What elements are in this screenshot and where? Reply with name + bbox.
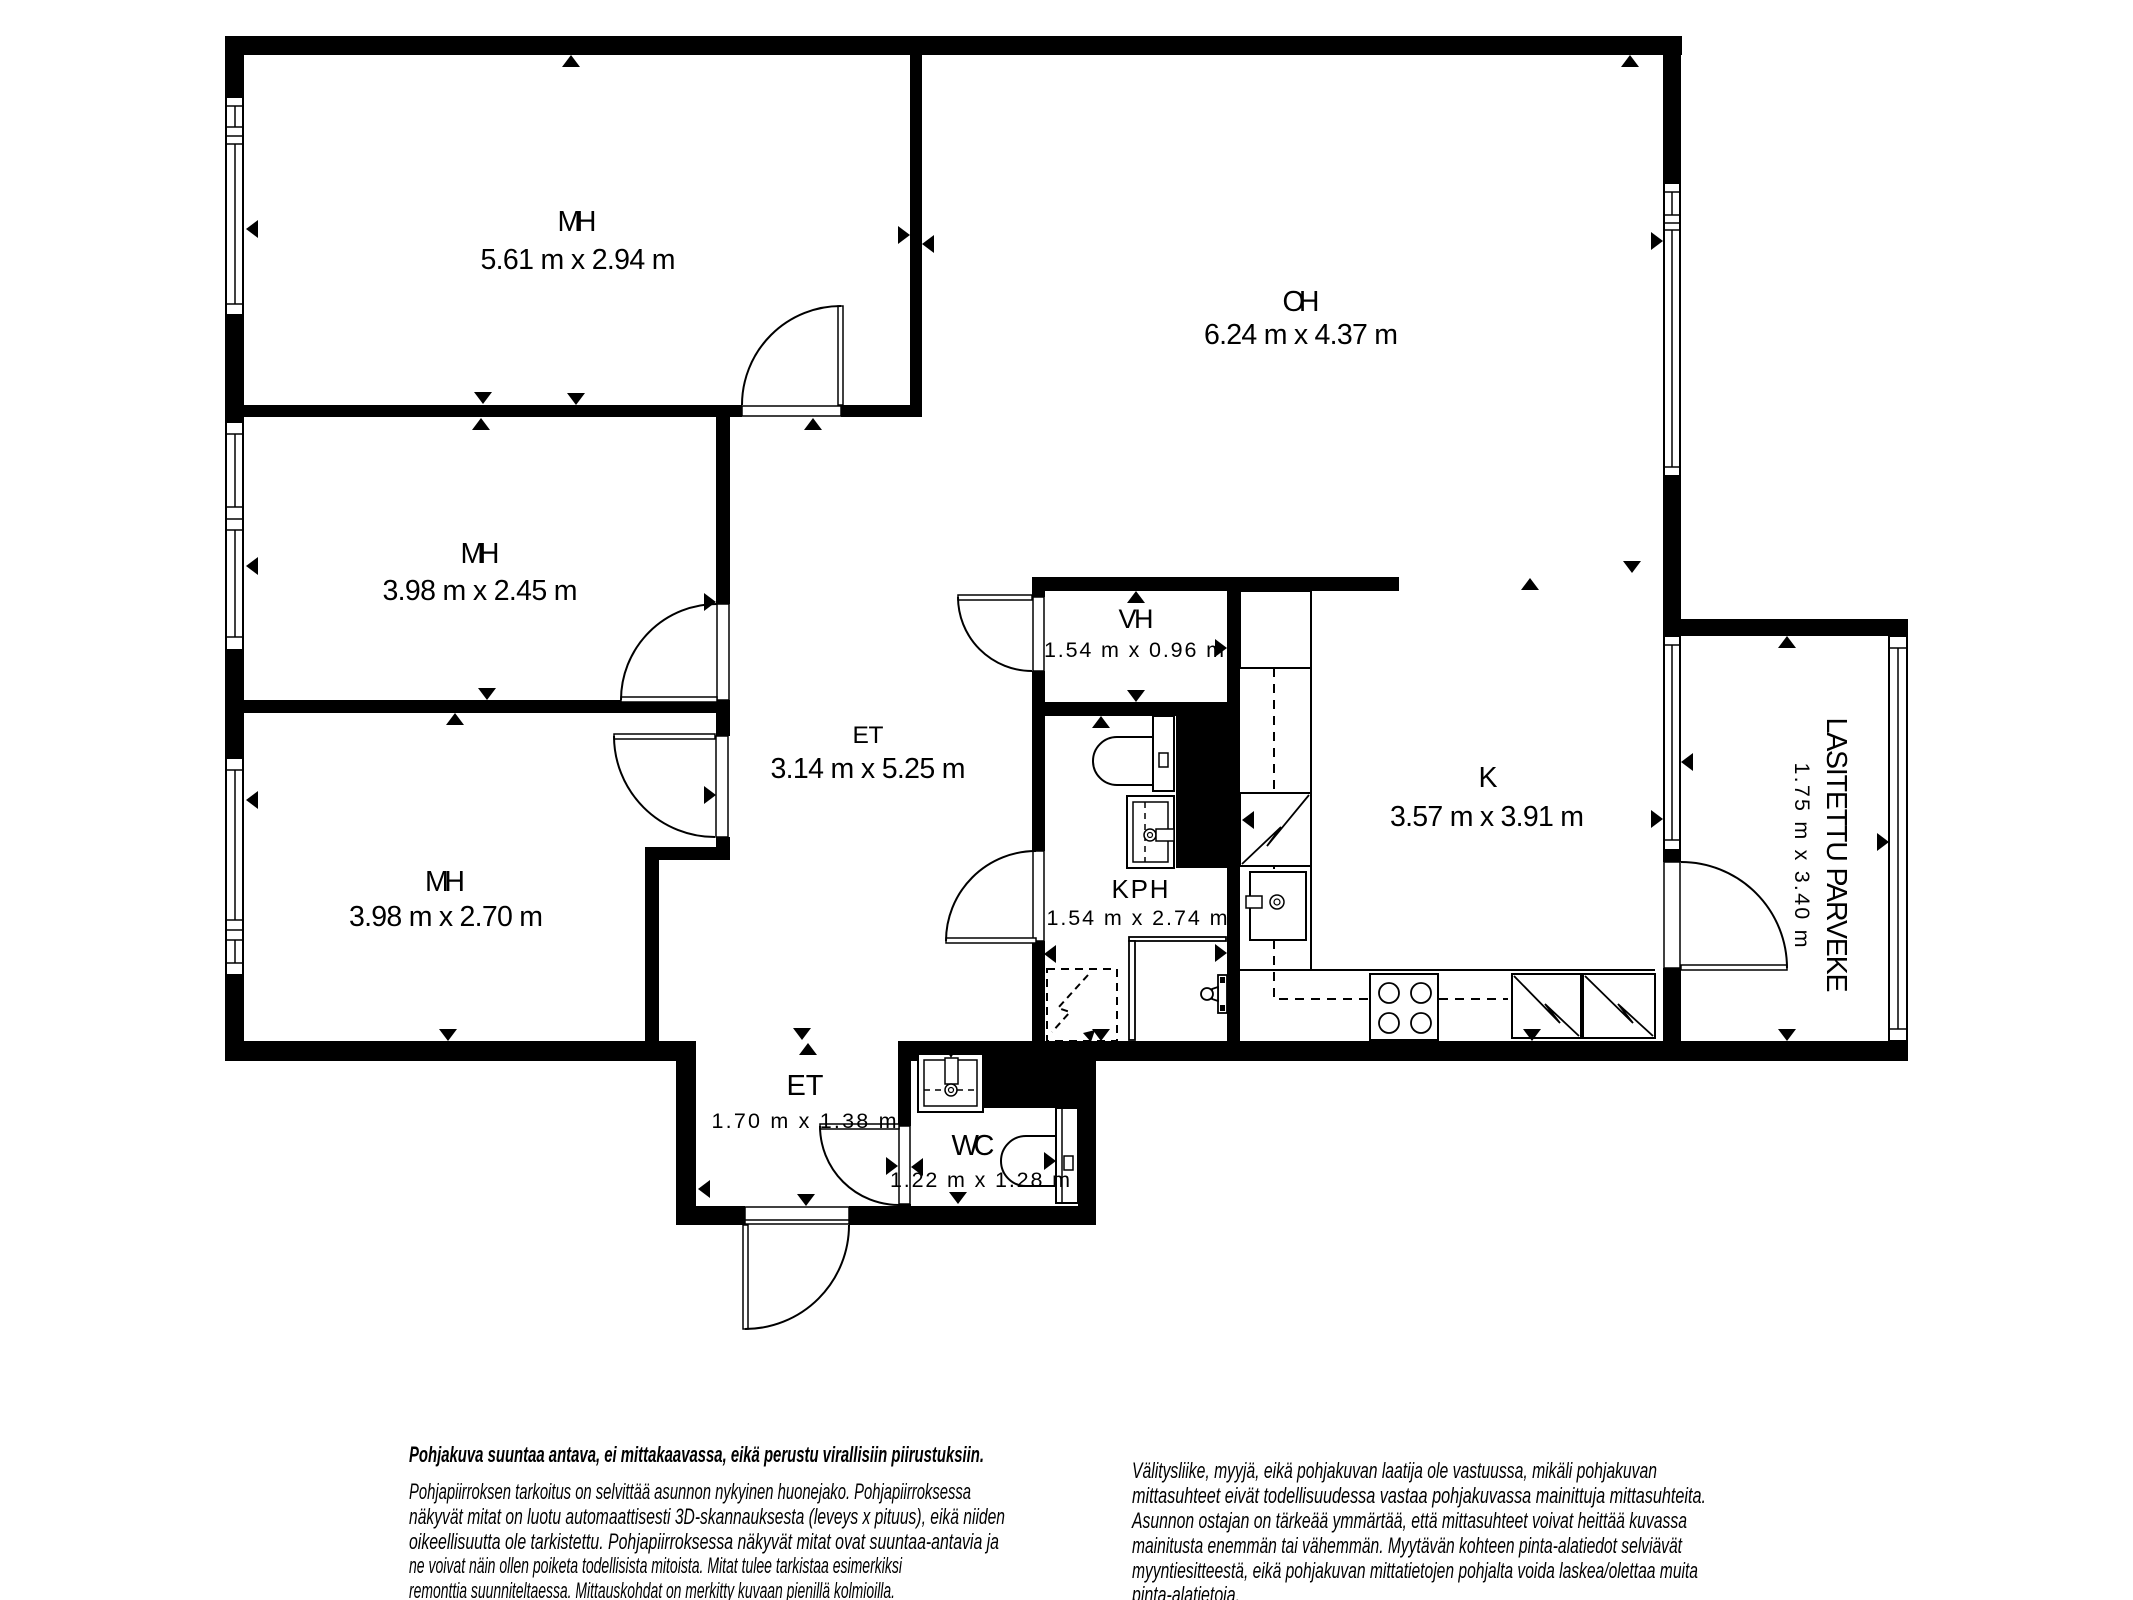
svg-text:Pohjapiirroksen tarkoitus on s: Pohjapiirroksen tarkoitus on selvittää a… — [409, 1479, 971, 1504]
svg-text:ET: ET — [787, 1070, 824, 1102]
svg-text:VH: VH — [1119, 604, 1154, 634]
svg-text:mittasuhteet eivät todellisuud: mittasuhteet eivät todellisuudessa vasta… — [1132, 1483, 1706, 1508]
svg-text:MH: MH — [558, 206, 597, 238]
svg-text:MH: MH — [425, 866, 465, 898]
svg-text:Pohjakuva suuntaa antava, ei m: Pohjakuva suuntaa antava, ei mittakaavas… — [409, 1442, 984, 1467]
svg-text:3.57 m x 3.91 m: 3.57 m x 3.91 m — [1390, 801, 1584, 833]
svg-text:KPH: KPH — [1112, 874, 1169, 904]
svg-text:3.98 m x 2.70 m: 3.98 m x 2.70 m — [349, 901, 543, 933]
svg-text:oikeellisuutta ole tarkistettu: oikeellisuutta ole tarkistettu. Pohjapii… — [409, 1529, 999, 1554]
svg-text:näkyvät mitat on luotu automaa: näkyvät mitat on luotu automaattisesti 3… — [409, 1504, 1005, 1529]
svg-text:ne voivat näin ollen poiketa t: ne voivat näin ollen poiketa todellisist… — [409, 1553, 903, 1578]
svg-text:Asunnon ostajan on tärkeää ymm: Asunnon ostajan on tärkeää ymmärtää, ett… — [1131, 1508, 1687, 1533]
svg-text:remonttia suunniteltaessa. Mit: remonttia suunniteltaessa. Mittauskohdat… — [409, 1578, 895, 1600]
svg-text:MH: MH — [461, 538, 500, 570]
svg-text:5.61 m x 2.94 m: 5.61 m x 2.94 m — [481, 244, 676, 276]
svg-text:6.24 m x 4.37 m: 6.24 m x 4.37 m — [1204, 319, 1398, 351]
svg-text:myyntiesitteestä, eikä pohjaku: myyntiesitteestä, eikä pohjakuvan mittat… — [1132, 1558, 1698, 1583]
svg-text:ET: ET — [853, 722, 884, 749]
svg-text:K: K — [1478, 762, 1497, 794]
svg-text:3.98 m x 2.45 m: 3.98 m x 2.45 m — [383, 575, 578, 607]
svg-text:mainitusta enemmän tai vähemmä: mainitusta enemmän tai vähemmän. Myytävä… — [1132, 1533, 1683, 1558]
svg-text:LASITETTU PARVEKE: LASITETTU PARVEKE — [1820, 718, 1852, 993]
svg-text:3.14 m x 5.25 m: 3.14 m x 5.25 m — [771, 753, 966, 785]
svg-text:OH: OH — [1283, 286, 1320, 318]
svg-text:Välitysliike, myyjä, eikä pohj: Välitysliike, myyjä, eikä pohjakuvan laa… — [1132, 1458, 1657, 1483]
svg-text:pinta-alatietoja.: pinta-alatietoja. — [1131, 1582, 1240, 1600]
svg-text:WC: WC — [952, 1130, 995, 1162]
